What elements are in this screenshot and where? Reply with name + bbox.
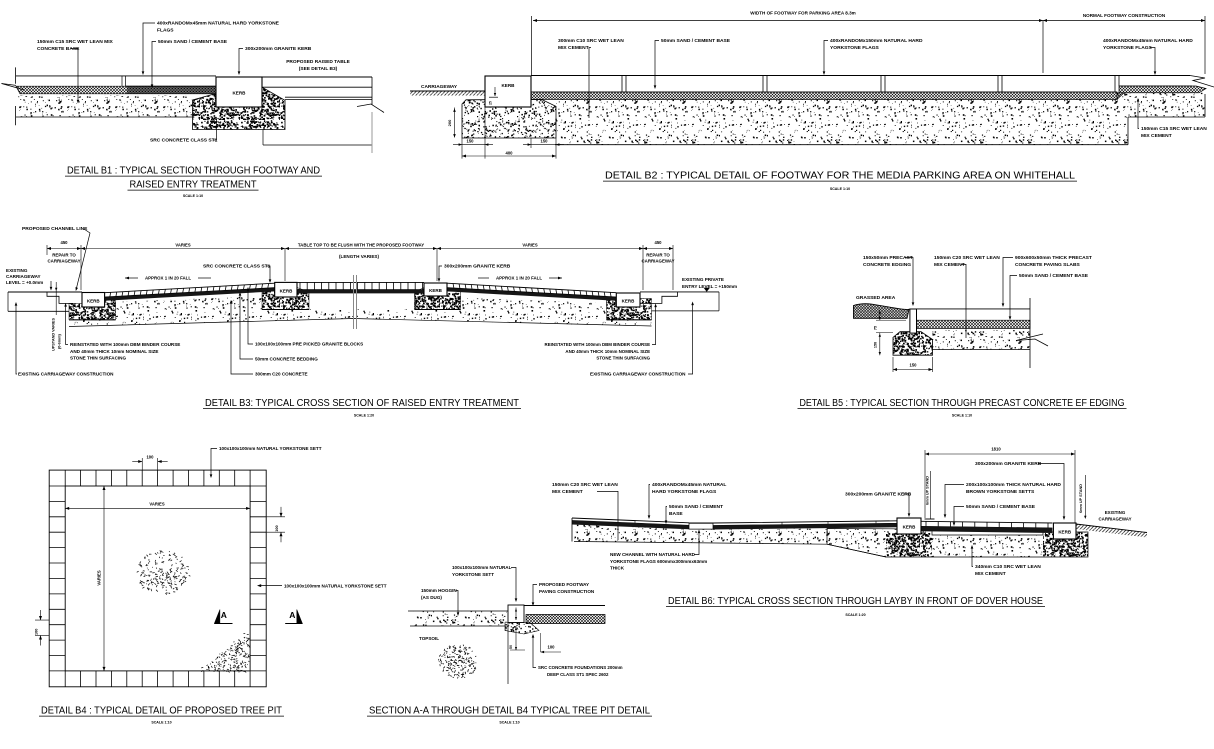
svg-text:150mm C20 SRC WET LEAN: 150mm C20 SRC WET LEAN [552, 482, 618, 488]
svg-text:100: 100 [548, 645, 556, 650]
svg-text:YORKSTONE FLAGS: YORKSTONE FLAGS [1103, 45, 1153, 51]
svg-text:150: 150 [910, 363, 918, 368]
svg-text:1810: 1810 [991, 447, 1001, 452]
svg-text:STONE THIN SURFACING: STONE THIN SURFACING [596, 356, 650, 361]
svg-text:DETAIL B4 : TYPICAL DETAIL OF: DETAIL B4 : TYPICAL DETAIL OF PROPOSED T… [41, 706, 282, 717]
svg-text:CONCRETE EDGING: CONCRETE EDGING [863, 262, 911, 268]
svg-text:(LENGTH VARIES): (LENGTH VARIES) [339, 254, 379, 259]
svg-text:A: A [221, 610, 227, 620]
svg-text:DETAIL B1 : TYPICAL SECTION TH: DETAIL B1 : TYPICAL SECTION THROUGH FOOT… [67, 166, 320, 177]
svg-text:KERB: KERB [232, 91, 246, 96]
svg-text:DETAIL B3: TYPICAL CROSS SECTI: DETAIL B3: TYPICAL CROSS SECTION OF RAIS… [205, 398, 519, 409]
svg-text:LEVEL = +0.0mm: LEVEL = +0.0mm [6, 280, 43, 285]
svg-text:CARRIAGEWAY: CARRIAGEWAY [421, 84, 458, 90]
svg-text:BROWN YORKSTONE SETTS: BROWN YORKSTONE SETTS [966, 489, 1035, 495]
svg-text:300x200mm GRANITE KERB: 300x200mm GRANITE KERB [245, 46, 312, 52]
svg-text:THICK: THICK [610, 566, 625, 571]
svg-text:HARD YORKSTONE FLAGS: HARD YORKSTONE FLAGS [652, 489, 717, 495]
svg-text:50: 50 [509, 645, 513, 649]
svg-text:CARRIAGEWAY: CARRIAGEWAY [47, 259, 80, 264]
svg-text:150: 150 [874, 342, 878, 348]
svg-text:PROPOSED FOOTWAY: PROPOSED FOOTWAY [539, 582, 589, 587]
svg-text:150mm HOGGIN: 150mm HOGGIN [421, 588, 457, 593]
svg-text:400xRANDOMx45mm NATURAL HARD: 400xRANDOMx45mm NATURAL HARD [1103, 38, 1193, 44]
svg-text:REINSTATED WITH 100mm DBM BIND: REINSTATED WITH 100mm DBM BINDER COURSE [70, 342, 180, 347]
svg-text:400xRANDOMx45mm NATURAL: 400xRANDOMx45mm NATURAL [652, 482, 726, 488]
svg-text:EXISTING: EXISTING [1105, 510, 1126, 515]
svg-text:REPAIR TO: REPAIR TO [646, 253, 670, 258]
svg-text:50mm SAND / CEMENT BASE: 50mm SAND / CEMENT BASE [661, 38, 731, 44]
svg-text:WIDTH OF FOOTWAY FOR PARKING A: WIDTH OF FOOTWAY FOR PARKING AREA 8.3m [750, 11, 856, 16]
svg-text:400xRANDOMx150mm NATURAL HARD: 400xRANDOMx150mm NATURAL HARD [830, 38, 923, 44]
svg-text:300x200mm GRANITE KERB: 300x200mm GRANITE KERB [975, 461, 1042, 467]
svg-text:200x100x100mm THICK NATURAL HA: 200x100x100mm THICK NATURAL HARD [966, 482, 1061, 488]
svg-text:MIX CEMENT: MIX CEMENT [975, 571, 1006, 577]
svg-text:VARIES: VARIES [97, 570, 102, 585]
svg-text:100: 100 [275, 525, 279, 531]
svg-text:GRASSED AREA: GRASSED AREA [856, 295, 896, 301]
svg-text:EXISTING CARRIAGEWAY CONSTRUCT: EXISTING CARRIAGEWAY CONSTRUCTION [590, 372, 686, 377]
svg-text:SCALE 1:20: SCALE 1:20 [354, 414, 374, 418]
svg-text:CARRIAGEWAY: CARRIAGEWAY [641, 259, 674, 264]
svg-text:NEW CHANNEL WITH NATURAL HARD: NEW CHANNEL WITH NATURAL HARD [610, 552, 696, 557]
svg-text:6mm UP STAND: 6mm UP STAND [1079, 484, 1083, 513]
svg-text:PAVING CONSTRUCTION: PAVING CONSTRUCTION [539, 589, 595, 594]
svg-text:(SEE DETAIL B3): (SEE DETAIL B3) [299, 66, 338, 72]
svg-text:KERB: KERB [429, 288, 443, 293]
svg-text:CARRIAGEWAY: CARRIAGEWAY [1098, 517, 1131, 522]
svg-text:100x100x100mm NATURAL: 100x100x100mm NATURAL [452, 565, 512, 570]
svg-text:50mm SAND / CEMENT BASE: 50mm SAND / CEMENT BASE [158, 39, 228, 45]
svg-text:SCALE 1:10: SCALE 1:10 [952, 414, 972, 418]
svg-text:150mm C20 SRC WET LEAN: 150mm C20 SRC WET LEAN [934, 255, 1000, 261]
svg-text:150mm C15 SRC WET LEAN MIX: 150mm C15 SRC WET LEAN MIX [37, 39, 114, 45]
svg-text:MIX CEMENT: MIX CEMENT [558, 45, 589, 51]
svg-text:DETAIL B2 : TYPICAL DETAIL OF: DETAIL B2 : TYPICAL DETAIL OF FOOTWAY FO… [605, 171, 1076, 182]
svg-text:TOPSOIL: TOPSOIL [419, 636, 439, 641]
svg-text:NORMAL FOOTWAY CONSTRUCTION: NORMAL FOOTWAY CONSTRUCTION [1083, 13, 1166, 18]
svg-text:KERB: KERB [501, 83, 515, 88]
svg-text:100x100x100mm PRE PICKED GRANI: 100x100x100mm PRE PICKED GRANITE BLOCKS [255, 342, 363, 347]
svg-text:SECTION A-A THROUGH DETAIL B4: SECTION A-A THROUGH DETAIL B4 TYPICAL TR… [369, 706, 651, 717]
svg-text:75: 75 [874, 326, 878, 330]
svg-text:MIX CEMENT: MIX CEMENT [1141, 133, 1172, 139]
svg-text:300mm C10 SRC WET LEAN: 300mm C10 SRC WET LEAN [558, 38, 624, 44]
svg-text:SCALE 1:10: SCALE 1:10 [183, 194, 203, 198]
svg-text:SCALE 1:10: SCALE 1:10 [151, 721, 171, 725]
svg-text:APPROX 1 IN 20 FALL: APPROX 1 IN 20 FALL [145, 276, 191, 281]
svg-text:100: 100 [35, 629, 39, 635]
svg-text:100x100x100mm NATURAL YORKSTON: 100x100x100mm NATURAL YORKSTONE SETT [284, 584, 387, 589]
svg-text:REPAIR TO: REPAIR TO [52, 253, 76, 258]
svg-text:150: 150 [467, 139, 475, 144]
svg-text:DETAIL B5 : TYPICAL SECTION TH: DETAIL B5 : TYPICAL SECTION THROUGH PREC… [800, 398, 1125, 409]
svg-text:400xRANDOMx45mm NATURAL HARD Y: 400xRANDOMx45mm NATURAL HARD YORKSTONE [157, 21, 280, 27]
svg-text:SRC CONCRETE FOUNDATIONS 200mm: SRC CONCRETE FOUNDATIONS 200mm [538, 665, 623, 670]
svg-text:50mm SAND / CEMENT: 50mm SAND / CEMENT [669, 504, 723, 510]
svg-text:VARIES: VARIES [175, 243, 190, 248]
svg-text:DETAIL B6: TYPICAL CROSS SECTI: DETAIL B6: TYPICAL CROSS SECTION THROUGH… [668, 596, 1043, 607]
svg-text:150: 150 [541, 139, 549, 144]
svg-text:UPSTAND VARIES: UPSTAND VARIES [52, 318, 56, 351]
svg-text:6mm UP STAND: 6mm UP STAND [926, 476, 930, 505]
svg-text:340mm C10 SRC WET LEAN: 340mm C10 SRC WET LEAN [975, 564, 1041, 570]
svg-text:STONE THIN SURFACING: STONE THIN SURFACING [70, 356, 126, 361]
svg-text:CARRIAGEWAY: CARRIAGEWAY [6, 274, 41, 279]
svg-text:EXISTING CARRIAGEWAY CONSTRUCT: EXISTING CARRIAGEWAY CONSTRUCTION [18, 372, 114, 377]
svg-text:A: A [289, 610, 295, 620]
svg-text:BASE: BASE [669, 511, 683, 517]
svg-text:50mm CONCRETE BEDDING: 50mm CONCRETE BEDDING [255, 357, 318, 362]
svg-text:KERB: KERB [903, 524, 917, 529]
svg-text:450: 450 [61, 240, 69, 245]
svg-text:SCALE 1:10: SCALE 1:10 [830, 187, 850, 191]
svg-text:25: 25 [489, 101, 493, 105]
svg-text:50mm SAND / CEMENT BASE: 50mm SAND / CEMENT BASE [1019, 273, 1089, 279]
svg-text:KERB: KERB [280, 288, 294, 293]
svg-text:VARIES: VARIES [149, 502, 164, 507]
svg-text:300x200mm GRANITE KERB: 300x200mm GRANITE KERB [845, 492, 912, 498]
svg-text:100: 100 [146, 455, 154, 460]
svg-text:150x50mm PRECAST: 150x50mm PRECAST [863, 255, 913, 261]
svg-text:100x100x100mm NATURAL YORKSTON: 100x100x100mm NATURAL YORKSTONE SETT [219, 446, 322, 451]
svg-text:KERB: KERB [1058, 529, 1072, 534]
svg-text:SCALE 1:10: SCALE 1:10 [499, 721, 519, 725]
svg-text:RAISED ENTRY TREATMENT: RAISED ENTRY TREATMENT [130, 180, 257, 191]
svg-text:MIX CEMENT: MIX CEMENT [552, 489, 583, 495]
svg-text:TABLE TOP TO BE FLUSH WITH THE: TABLE TOP TO BE FLUSH WITH THE PROPOSED … [298, 243, 424, 248]
svg-text:YORKSTONE FLAGS: YORKSTONE FLAGS [830, 45, 880, 51]
svg-text:EXISTING: EXISTING [6, 268, 28, 273]
svg-text:300mm C20 CONCRETE: 300mm C20 CONCRETE [255, 372, 308, 377]
svg-text:900x600x50mm THICK PRECAST: 900x600x50mm THICK PRECAST [1015, 255, 1092, 261]
svg-text:DEEP CLASS ST1 SPEC 2602: DEEP CLASS ST1 SPEC 2602 [547, 672, 609, 677]
svg-text:(0-6mm): (0-6mm) [58, 333, 62, 349]
svg-text:EXISTING PRIVATE: EXISTING PRIVATE [682, 277, 724, 282]
svg-text:APPROX 1 IN 20 FALL: APPROX 1 IN 20 FALL [496, 276, 542, 281]
svg-text:(AS DUG): (AS DUG) [421, 595, 442, 600]
svg-text:KERB: KERB [622, 298, 636, 303]
svg-text:CONCRETE BASE: CONCRETE BASE [37, 46, 80, 52]
svg-text:CONCRETE PAVING SLABS: CONCRETE PAVING SLABS [1015, 262, 1080, 268]
svg-text:PROPOSED RAISED TABLE: PROPOSED RAISED TABLE [286, 59, 350, 65]
svg-text:VARIES: VARIES [522, 243, 537, 248]
svg-text:SRC CONCRETE CLASS ST1: SRC CONCRETE CLASS ST1 [150, 138, 218, 144]
svg-text:150mm C15 SRC WET LEAN: 150mm C15 SRC WET LEAN [1141, 126, 1207, 132]
svg-text:300x200mm GRANITE KERB: 300x200mm GRANITE KERB [444, 264, 511, 270]
svg-text:50mm SAND / CEMENT BASE: 50mm SAND / CEMENT BASE [966, 504, 1036, 510]
svg-text:SCALE 1:20: SCALE 1:20 [845, 613, 865, 617]
svg-text:KERB: KERB [87, 298, 101, 303]
svg-text:450: 450 [655, 240, 663, 245]
svg-text:AND 40mm THICK 10mm NOMINAL SI: AND 40mm THICK 10mm NOMINAL SIZE [70, 349, 159, 354]
svg-text:REINSTATED WITH 100mm DBM BIND: REINSTATED WITH 100mm DBM BINDER COURSE [545, 342, 651, 347]
svg-text:YORKSTONE SETT: YORKSTONE SETT [452, 572, 494, 577]
svg-text:YORKSTONE FLAGS 600mmx300mmx63: YORKSTONE FLAGS 600mmx300mmx63mm [610, 559, 707, 564]
svg-text:200: 200 [447, 119, 452, 126]
svg-text:SRC CONCRETE CLASS ST1: SRC CONCRETE CLASS ST1 [203, 264, 271, 270]
svg-text:FLAGS: FLAGS [157, 27, 174, 33]
svg-text:PROPOSED CHANNEL LINE: PROPOSED CHANNEL LINE [22, 226, 88, 232]
svg-text:MIX CEMENT: MIX CEMENT [934, 262, 965, 268]
svg-text:400: 400 [506, 151, 514, 156]
svg-text:AND 40mm THICK 10mm NOMINAL SI: AND 40mm THICK 10mm NOMINAL SIZE [565, 349, 650, 354]
